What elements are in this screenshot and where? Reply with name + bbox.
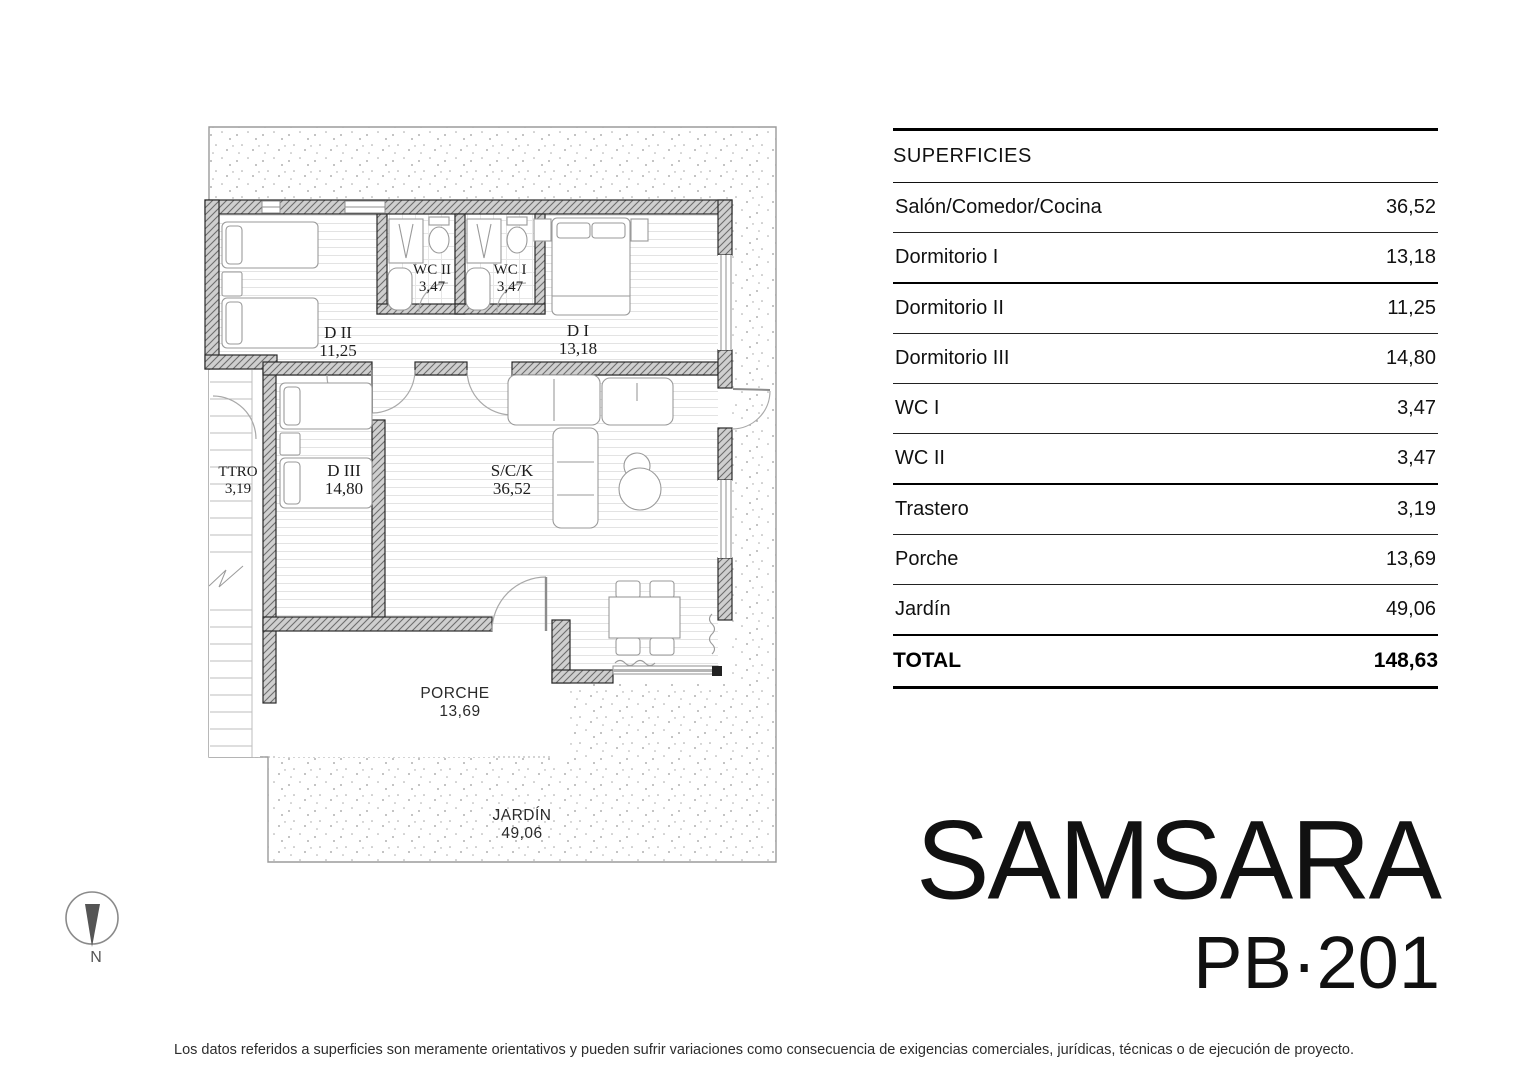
total-value: 148,63: [1374, 649, 1438, 673]
side-steps: [209, 370, 260, 757]
room-label-d2: D II: [324, 323, 352, 342]
room-area-d1: 13,18: [559, 339, 597, 358]
disclaimer-text: Los datos referidos a superficies son me…: [0, 1042, 1528, 1058]
chair: [616, 638, 640, 655]
nightstand: [534, 219, 551, 241]
row-label: Salón/Comedor/Cocina: [893, 196, 1102, 219]
row-value: 49,06: [1386, 598, 1438, 621]
room-area-jardin: 49,06: [501, 825, 542, 842]
surfaces-table-header: SUPERFICIES: [893, 131, 1438, 183]
sofa: [553, 428, 598, 528]
north-label: N: [90, 949, 102, 966]
toilet: [429, 227, 449, 253]
nightstand: [280, 433, 300, 455]
row-label: Dormitorio III: [893, 347, 1009, 370]
floor-plan-sheet: D II 11,25 WC II 3,47 WC I 3,47 D I 13,1…: [0, 0, 1528, 1080]
room-label-d3: D III: [327, 461, 361, 480]
row-label: Dormitorio II: [893, 297, 1004, 320]
table-row-total: TOTAL 148,63: [893, 636, 1438, 689]
table-row-wc-2: WC II 3,47: [893, 434, 1438, 485]
room-label-ttro: TTRO: [218, 464, 257, 480]
room-area-d3: 14,80: [325, 479, 363, 498]
row-value: 13,69: [1386, 548, 1438, 571]
room-label-sck: S/C/K: [491, 461, 534, 480]
row-label: Jardín: [893, 598, 951, 621]
row-label: Dormitorio I: [893, 246, 998, 269]
row-value: 3,47: [1397, 447, 1438, 470]
toilet-tank: [429, 217, 449, 225]
dining-table: [609, 597, 680, 638]
table-row-dormitorio-2: Dormitorio II 11,25: [893, 284, 1438, 334]
branding-block: SAMSARA PB·201: [916, 806, 1440, 1000]
project-name: SAMSARA: [916, 805, 1440, 917]
room-area-sck: 36,52: [493, 479, 531, 498]
sink: [388, 268, 412, 310]
table-row-dormitorio-1: Dormitorio I 13,18: [893, 233, 1438, 284]
row-label: Porche: [893, 548, 958, 571]
chair: [650, 581, 674, 598]
surfaces-table: SUPERFICIES Salón/Comedor/Cocina 36,52 D…: [893, 128, 1438, 689]
total-label: TOTAL: [893, 649, 961, 673]
room-area-ttro: 3,19: [225, 481, 251, 497]
toilet: [507, 227, 527, 253]
table-row-jardin: Jardín 49,06: [893, 585, 1438, 636]
chair: [650, 638, 674, 655]
row-label: WC I: [893, 397, 939, 420]
room-area-wc2: 3,47: [419, 279, 446, 295]
chair: [616, 581, 640, 598]
room-label-porche: PORCHE: [420, 685, 489, 702]
room-area-wc1: 3,47: [497, 279, 524, 295]
row-value: 11,25: [1387, 297, 1438, 320]
room-area-d2: 11,25: [319, 341, 357, 360]
north-arrow: N: [66, 892, 118, 966]
room-label-jardin: JARDÍN: [493, 807, 552, 824]
row-value: 36,52: [1386, 196, 1438, 219]
row-label: WC II: [893, 447, 945, 470]
sink: [466, 268, 490, 310]
row-value: 13,18: [1386, 246, 1438, 269]
table-row-wc-1: WC I 3,47: [893, 384, 1438, 434]
north-arrow-needle: [85, 904, 100, 947]
nightstand: [631, 219, 648, 241]
row-label: Trastero: [893, 498, 969, 521]
row-value: 3,19: [1397, 498, 1438, 521]
room-area-porche: 13,69: [439, 703, 480, 720]
room-label-d1: D I: [567, 321, 590, 340]
row-value: 3,47: [1397, 397, 1438, 420]
row-value: 14,80: [1386, 347, 1438, 370]
toilet-tank: [507, 217, 527, 225]
nightstand: [222, 272, 242, 296]
table-row-salon: Salón/Comedor/Cocina 36,52: [893, 183, 1438, 233]
room-label-wc1: WC I: [494, 262, 527, 278]
unit-code: PB·201: [916, 926, 1440, 1000]
table-row-porche: Porche 13,69: [893, 535, 1438, 585]
side-table: [619, 468, 661, 510]
room-label-wc2: WC II: [413, 262, 451, 278]
table-row-dormitorio-3: Dormitorio III 14,80: [893, 334, 1438, 384]
table-row-trastero: Trastero 3,19: [893, 485, 1438, 535]
